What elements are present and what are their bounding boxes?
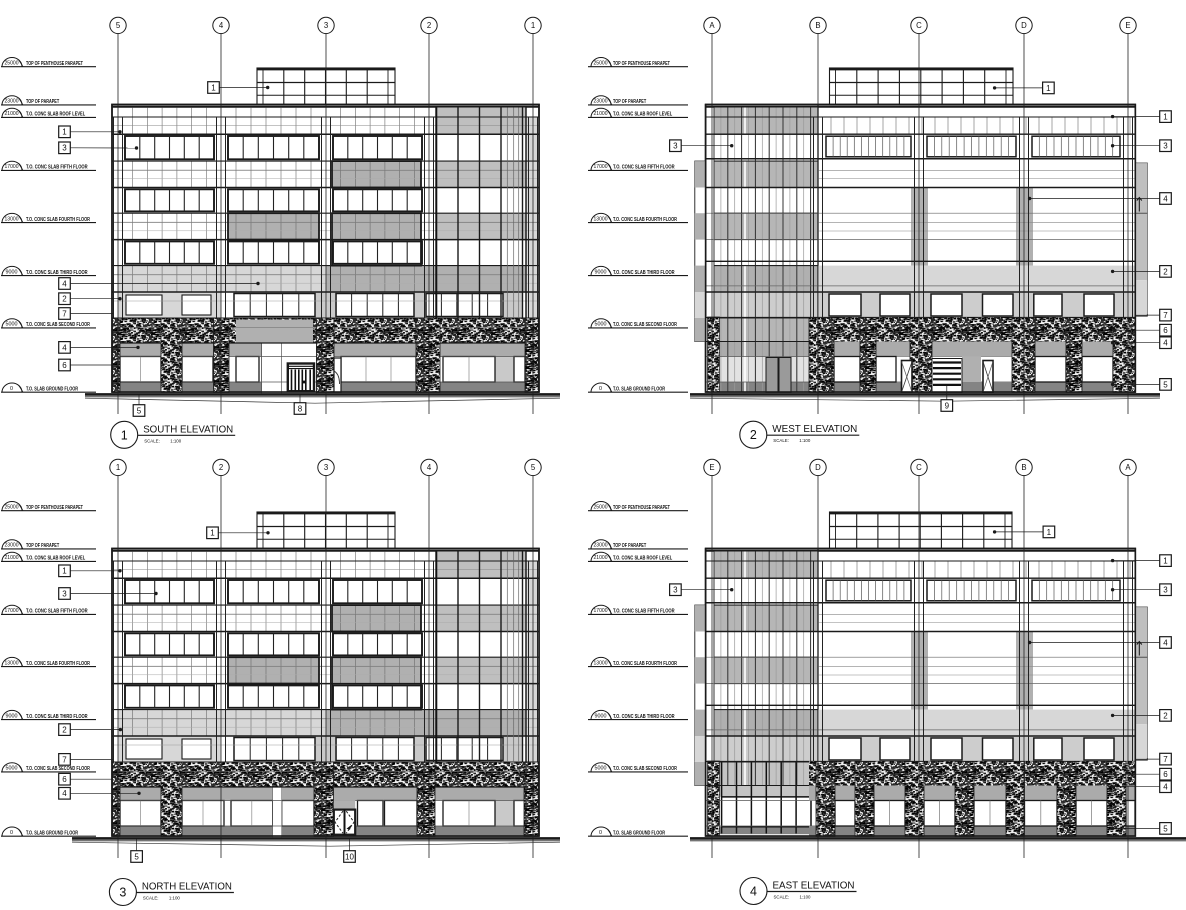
svg-text:1:100: 1:100 xyxy=(169,896,181,901)
svg-text:2: 2 xyxy=(1163,267,1168,276)
svg-text:4: 4 xyxy=(750,885,757,899)
svg-text:3: 3 xyxy=(62,144,67,153)
svg-text:1: 1 xyxy=(116,463,120,472)
svg-text:SCALE:: SCALE: xyxy=(774,895,790,900)
svg-text:B: B xyxy=(1021,463,1026,472)
svg-text:17000: 17000 xyxy=(5,608,19,614)
svg-text:23000: 23000 xyxy=(5,99,19,105)
svg-text:23000: 23000 xyxy=(5,543,19,549)
svg-text:5000: 5000 xyxy=(6,766,18,772)
svg-text:1: 1 xyxy=(1163,557,1168,566)
svg-text:1: 1 xyxy=(62,567,67,576)
svg-text:5: 5 xyxy=(1163,380,1168,389)
svg-text:T.O. SLAB GROUND FLOOR: T.O. SLAB GROUND FLOOR xyxy=(613,830,665,836)
svg-text:T.O. CONC SLAB FIFTH FLOOR: T.O. CONC SLAB FIFTH FLOOR xyxy=(26,165,88,171)
svg-text:13000: 13000 xyxy=(594,660,608,666)
svg-text:7: 7 xyxy=(1163,755,1168,764)
svg-text:6: 6 xyxy=(1163,770,1168,779)
svg-text:EAST ELEVATION: EAST ELEVATION xyxy=(773,881,855,892)
svg-text:T.O. CONC SLAB SECOND FLOOR: T.O. CONC SLAB SECOND FLOOR xyxy=(613,322,677,328)
svg-text:NORTH ELEVATION: NORTH ELEVATION xyxy=(142,882,232,893)
svg-text:T.O. CONC SLAB FIFTH FLOOR: T.O. CONC SLAB FIFTH FLOOR xyxy=(613,609,675,615)
svg-text:TOP OF PENTHOUSE PARAPET: TOP OF PENTHOUSE PARAPET xyxy=(613,61,670,67)
svg-text:T.O. CONC SLAB THIRD FLOOR: T.O. CONC SLAB THIRD FLOOR xyxy=(26,270,88,276)
svg-text:9000: 9000 xyxy=(595,713,607,719)
svg-text:SCALE:: SCALE: xyxy=(773,438,789,443)
svg-text:D: D xyxy=(815,463,821,472)
svg-text:1: 1 xyxy=(210,529,215,538)
svg-text:1: 1 xyxy=(1046,84,1051,93)
svg-text:3: 3 xyxy=(673,142,678,151)
svg-text:3: 3 xyxy=(62,589,67,598)
svg-text:3: 3 xyxy=(1163,142,1168,151)
svg-text:21000: 21000 xyxy=(594,111,608,117)
svg-text:17000: 17000 xyxy=(594,164,608,170)
svg-text:T.O. CONC SLAB ROOF LEVEL: T.O. CONC SLAB ROOF LEVEL xyxy=(26,556,86,562)
svg-text:5: 5 xyxy=(531,463,536,472)
svg-text:SCALE:: SCALE: xyxy=(144,438,160,443)
svg-text:TOP OF PARAPET: TOP OF PARAPET xyxy=(613,99,647,105)
svg-text:T.O. CONC SLAB FIFTH FLOOR: T.O. CONC SLAB FIFTH FLOOR xyxy=(613,165,675,171)
svg-text:5: 5 xyxy=(137,406,142,415)
svg-text:5000: 5000 xyxy=(6,322,18,328)
svg-text:9: 9 xyxy=(945,401,950,410)
svg-text:17000: 17000 xyxy=(594,608,608,614)
svg-text:A: A xyxy=(709,21,715,30)
svg-text:1:100: 1:100 xyxy=(800,895,812,900)
svg-text:7: 7 xyxy=(62,755,67,764)
svg-text:1:100: 1:100 xyxy=(170,438,182,443)
svg-text:T.O. CONC SLAB SECOND FLOOR: T.O. CONC SLAB SECOND FLOOR xyxy=(26,322,90,328)
svg-text:4: 4 xyxy=(1163,194,1168,203)
svg-text:0: 0 xyxy=(599,830,602,836)
svg-text:C: C xyxy=(916,21,922,30)
svg-text:T.O. CONC SLAB THIRD FLOOR: T.O. CONC SLAB THIRD FLOOR xyxy=(613,714,675,720)
svg-text:6: 6 xyxy=(62,775,67,784)
svg-text:T.O. SLAB GROUND FLOOR: T.O. SLAB GROUND FLOOR xyxy=(26,830,78,836)
svg-text:2: 2 xyxy=(1163,711,1168,720)
svg-text:1:100: 1:100 xyxy=(799,438,811,443)
svg-text:T.O. CONC SLAB FOURTH FLOOR: T.O. CONC SLAB FOURTH FLOOR xyxy=(26,217,90,223)
svg-text:T.O. CONC SLAB SECOND FLOOR: T.O. CONC SLAB SECOND FLOOR xyxy=(26,766,90,772)
svg-text:T.O. SLAB GROUND FLOOR: T.O. SLAB GROUND FLOOR xyxy=(613,386,665,392)
svg-text:23000: 23000 xyxy=(594,543,608,549)
svg-text:T.O. SLAB GROUND FLOOR: T.O. SLAB GROUND FLOOR xyxy=(26,386,78,392)
svg-text:T.O. CONC SLAB FIFTH FLOOR: T.O. CONC SLAB FIFTH FLOOR xyxy=(26,609,88,615)
svg-text:TOP OF PARAPET: TOP OF PARAPET xyxy=(26,543,60,549)
svg-text:1: 1 xyxy=(1163,113,1168,122)
svg-text:1: 1 xyxy=(62,128,67,137)
svg-text:SCALE:: SCALE: xyxy=(143,896,159,901)
svg-text:21000: 21000 xyxy=(5,555,19,561)
svg-text:5000: 5000 xyxy=(595,322,607,328)
svg-text:T.O. CONC SLAB ROOF LEVEL: T.O. CONC SLAB ROOF LEVEL xyxy=(613,556,673,562)
svg-text:T.O. CONC SLAB THIRD FLOOR: T.O. CONC SLAB THIRD FLOOR xyxy=(26,714,88,720)
svg-text:7: 7 xyxy=(62,309,67,318)
svg-text:13000: 13000 xyxy=(594,216,608,222)
svg-text:3: 3 xyxy=(673,586,678,595)
svg-text:13000: 13000 xyxy=(5,216,19,222)
svg-text:E: E xyxy=(1125,21,1130,30)
svg-text:TOP OF PENTHOUSE PARAPET: TOP OF PENTHOUSE PARAPET xyxy=(613,505,670,511)
svg-text:TOP OF PARAPET: TOP OF PARAPET xyxy=(613,543,647,549)
svg-text:T.O. CONC SLAB THIRD FLOOR: T.O. CONC SLAB THIRD FLOOR xyxy=(613,270,675,276)
svg-text:2: 2 xyxy=(427,21,431,30)
svg-text:1: 1 xyxy=(211,83,216,92)
svg-text:4: 4 xyxy=(1163,638,1168,647)
svg-text:T.O. CONC SLAB FOURTH FLOOR: T.O. CONC SLAB FOURTH FLOOR xyxy=(613,217,677,223)
svg-text:10: 10 xyxy=(345,852,354,861)
svg-text:E: E xyxy=(709,463,714,472)
svg-text:25000: 25000 xyxy=(5,505,19,511)
svg-text:3: 3 xyxy=(119,886,126,900)
svg-text:WEST ELEVATION: WEST ELEVATION xyxy=(772,424,857,435)
svg-text:TOP OF PARAPET: TOP OF PARAPET xyxy=(26,99,60,105)
svg-text:1: 1 xyxy=(121,428,128,442)
svg-text:17000: 17000 xyxy=(5,164,19,170)
svg-text:TOP OF PENTHOUSE PARAPET: TOP OF PENTHOUSE PARAPET xyxy=(26,505,83,511)
svg-text:4: 4 xyxy=(62,343,67,352)
svg-text:2: 2 xyxy=(750,428,757,442)
svg-text:2: 2 xyxy=(62,726,67,735)
svg-text:3: 3 xyxy=(324,463,328,472)
svg-text:2: 2 xyxy=(62,295,67,304)
svg-text:T.O. CONC SLAB ROOF LEVEL: T.O. CONC SLAB ROOF LEVEL xyxy=(26,112,86,118)
svg-text:1: 1 xyxy=(531,21,535,30)
svg-text:SOUTH ELEVATION: SOUTH ELEVATION xyxy=(143,424,233,435)
svg-text:C: C xyxy=(916,463,922,472)
svg-text:4: 4 xyxy=(62,279,67,288)
svg-text:5: 5 xyxy=(1163,824,1168,833)
svg-text:T.O. CONC SLAB FOURTH FLOOR: T.O. CONC SLAB FOURTH FLOOR xyxy=(613,661,677,667)
svg-text:4: 4 xyxy=(1163,339,1168,348)
svg-text:2: 2 xyxy=(219,463,223,472)
svg-text:25000: 25000 xyxy=(594,505,608,511)
svg-text:D: D xyxy=(1021,21,1027,30)
svg-text:7: 7 xyxy=(1163,311,1168,320)
svg-text:4: 4 xyxy=(219,21,224,30)
svg-text:5: 5 xyxy=(116,21,121,30)
svg-text:5: 5 xyxy=(134,852,139,861)
svg-text:21000: 21000 xyxy=(5,111,19,117)
svg-text:13000: 13000 xyxy=(5,660,19,666)
svg-text:3: 3 xyxy=(1163,586,1168,595)
svg-text:1: 1 xyxy=(1047,528,1052,537)
svg-text:25000: 25000 xyxy=(594,61,608,67)
svg-text:23000: 23000 xyxy=(594,99,608,105)
svg-text:4: 4 xyxy=(1163,783,1168,792)
svg-text:0: 0 xyxy=(10,386,13,392)
svg-text:T.O. CONC SLAB ROOF LEVEL: T.O. CONC SLAB ROOF LEVEL xyxy=(613,112,673,118)
svg-text:0: 0 xyxy=(599,386,602,392)
svg-text:T.O. CONC SLAB FOURTH FLOOR: T.O. CONC SLAB FOURTH FLOOR xyxy=(26,661,90,667)
svg-text:4: 4 xyxy=(62,789,67,798)
svg-text:21000: 21000 xyxy=(594,555,608,561)
svg-text:TOP OF PENTHOUSE PARAPET: TOP OF PENTHOUSE PARAPET xyxy=(26,61,83,67)
svg-text:9000: 9000 xyxy=(6,269,18,275)
svg-text:B: B xyxy=(815,21,820,30)
svg-text:6: 6 xyxy=(62,361,67,370)
svg-text:3: 3 xyxy=(324,21,328,30)
svg-text:5000: 5000 xyxy=(595,766,607,772)
svg-text:0: 0 xyxy=(10,830,13,836)
svg-text:T.O. CONC SLAB SECOND FLOOR: T.O. CONC SLAB SECOND FLOOR xyxy=(613,766,677,772)
svg-text:25000: 25000 xyxy=(5,61,19,67)
svg-text:4: 4 xyxy=(427,463,432,472)
svg-text:9000: 9000 xyxy=(595,269,607,275)
svg-text:6: 6 xyxy=(1163,326,1168,335)
svg-text:8: 8 xyxy=(298,404,303,413)
svg-text:9000: 9000 xyxy=(6,713,18,719)
svg-text:A: A xyxy=(1125,463,1131,472)
